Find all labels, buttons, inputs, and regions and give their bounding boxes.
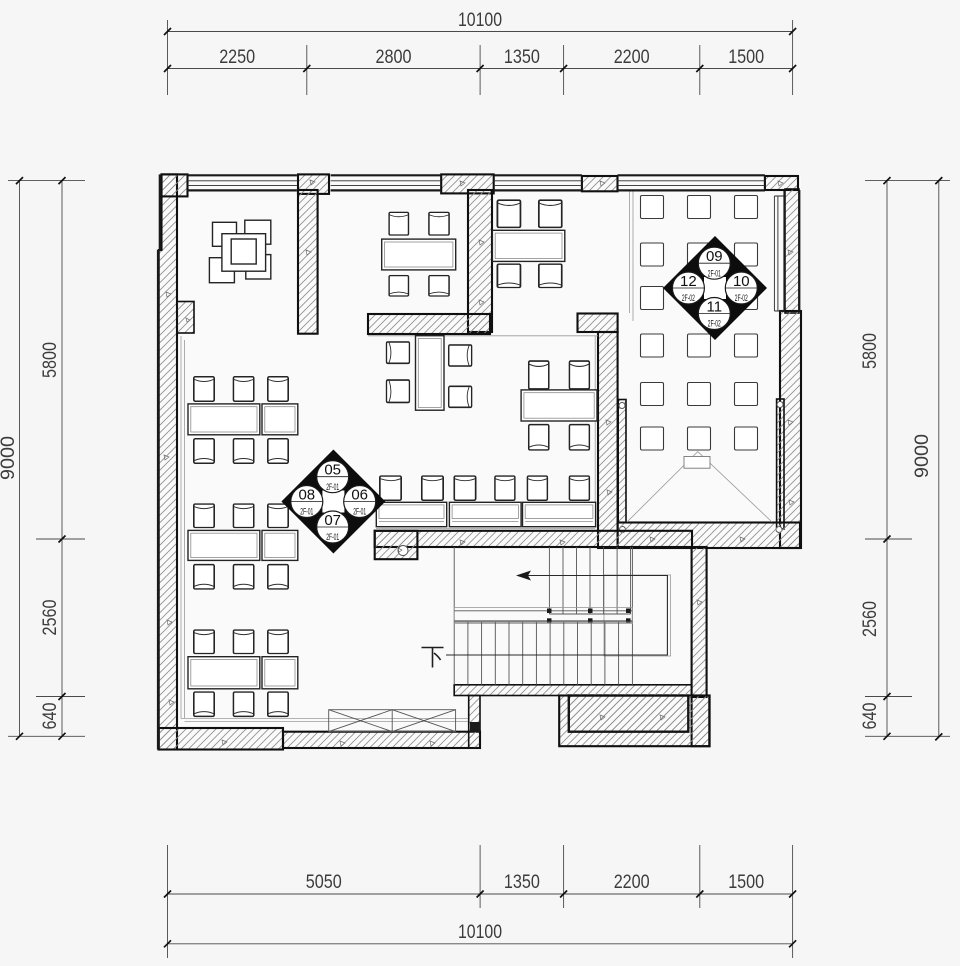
svg-text:2F-02: 2F-02 <box>735 293 748 304</box>
svg-text:9000: 9000 <box>912 434 933 478</box>
svg-text:5800: 5800 <box>40 342 61 378</box>
svg-text:2F-01: 2F-01 <box>300 507 313 518</box>
svg-text:05: 05 <box>324 462 341 479</box>
svg-text:640: 640 <box>40 703 61 730</box>
svg-text:5800: 5800 <box>860 333 881 369</box>
svg-text:2560: 2560 <box>860 601 881 637</box>
svg-text:08: 08 <box>298 487 315 504</box>
svg-text:2F-02: 2F-02 <box>682 293 695 304</box>
svg-text:10: 10 <box>733 273 750 290</box>
svg-text:12: 12 <box>680 273 697 290</box>
svg-text:06: 06 <box>351 487 368 504</box>
svg-text:2200: 2200 <box>614 872 650 893</box>
svg-text:2F-01: 2F-01 <box>326 532 339 543</box>
svg-text:2200: 2200 <box>614 47 650 68</box>
svg-text:1500: 1500 <box>728 47 764 68</box>
svg-text:2F-01: 2F-01 <box>353 507 366 518</box>
svg-text:07: 07 <box>324 512 341 529</box>
svg-text:09: 09 <box>706 248 723 265</box>
svg-text:2560: 2560 <box>40 600 61 636</box>
svg-text:2F-01: 2F-01 <box>708 268 721 279</box>
svg-text:10100: 10100 <box>458 922 502 943</box>
svg-text:2250: 2250 <box>219 47 255 68</box>
svg-text:11: 11 <box>707 299 723 316</box>
svg-text:640: 640 <box>860 703 881 730</box>
svg-text:9000: 9000 <box>0 436 19 480</box>
svg-text:2800: 2800 <box>376 47 412 68</box>
svg-text:10100: 10100 <box>458 10 502 31</box>
svg-text:5050: 5050 <box>306 872 342 893</box>
svg-text:2F-02: 2F-02 <box>708 319 721 330</box>
svg-text:2F-01: 2F-01 <box>326 482 339 493</box>
svg-text:1500: 1500 <box>728 872 764 893</box>
svg-text:1350: 1350 <box>504 47 540 68</box>
svg-text:1350: 1350 <box>504 872 540 893</box>
